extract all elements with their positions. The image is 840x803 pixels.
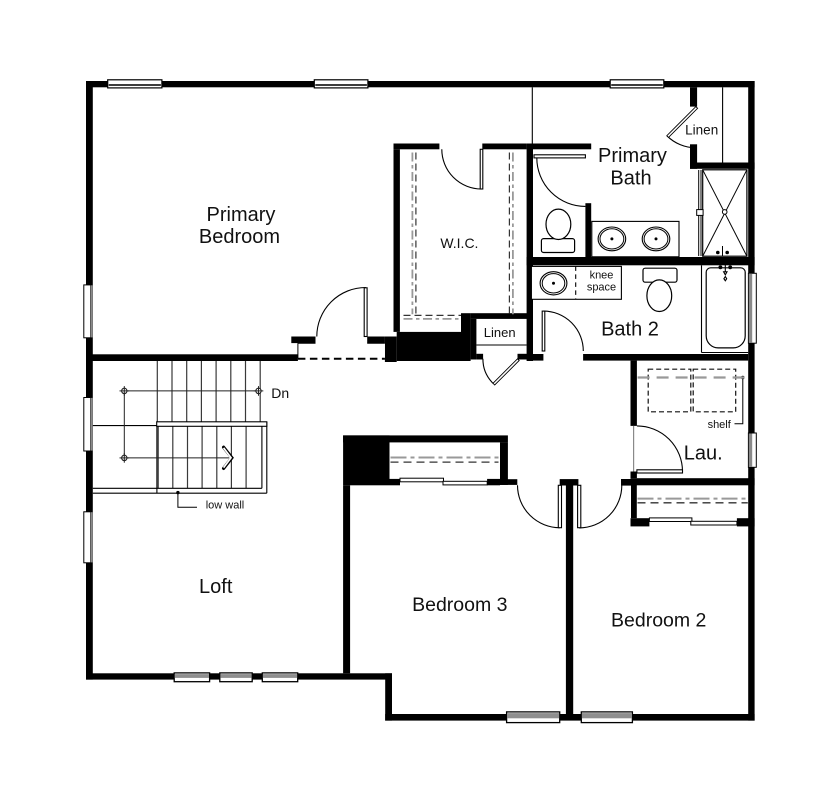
svg-text:Bedroom 3: Bedroom 3: [412, 594, 507, 616]
svg-text:Primary: Primary: [598, 145, 667, 167]
svg-text:Linen: Linen: [484, 325, 516, 340]
svg-text:Dn: Dn: [271, 385, 289, 401]
svg-text:Bath: Bath: [610, 168, 651, 190]
svg-text:Primary: Primary: [207, 204, 276, 226]
svg-text:Bedroom 2: Bedroom 2: [611, 609, 706, 631]
svg-text:knee: knee: [590, 270, 614, 282]
svg-text:shelf: shelf: [708, 419, 732, 431]
svg-text:Bath 2: Bath 2: [601, 319, 659, 341]
svg-text:Bedroom: Bedroom: [199, 226, 280, 248]
svg-text:Linen: Linen: [685, 123, 718, 138]
svg-text:Lau.: Lau.: [684, 443, 723, 465]
svg-text:W.I.C.: W.I.C.: [440, 235, 478, 251]
svg-text:Loft: Loft: [199, 576, 233, 598]
svg-text:space: space: [587, 282, 616, 294]
svg-text:low wall: low wall: [206, 500, 245, 512]
